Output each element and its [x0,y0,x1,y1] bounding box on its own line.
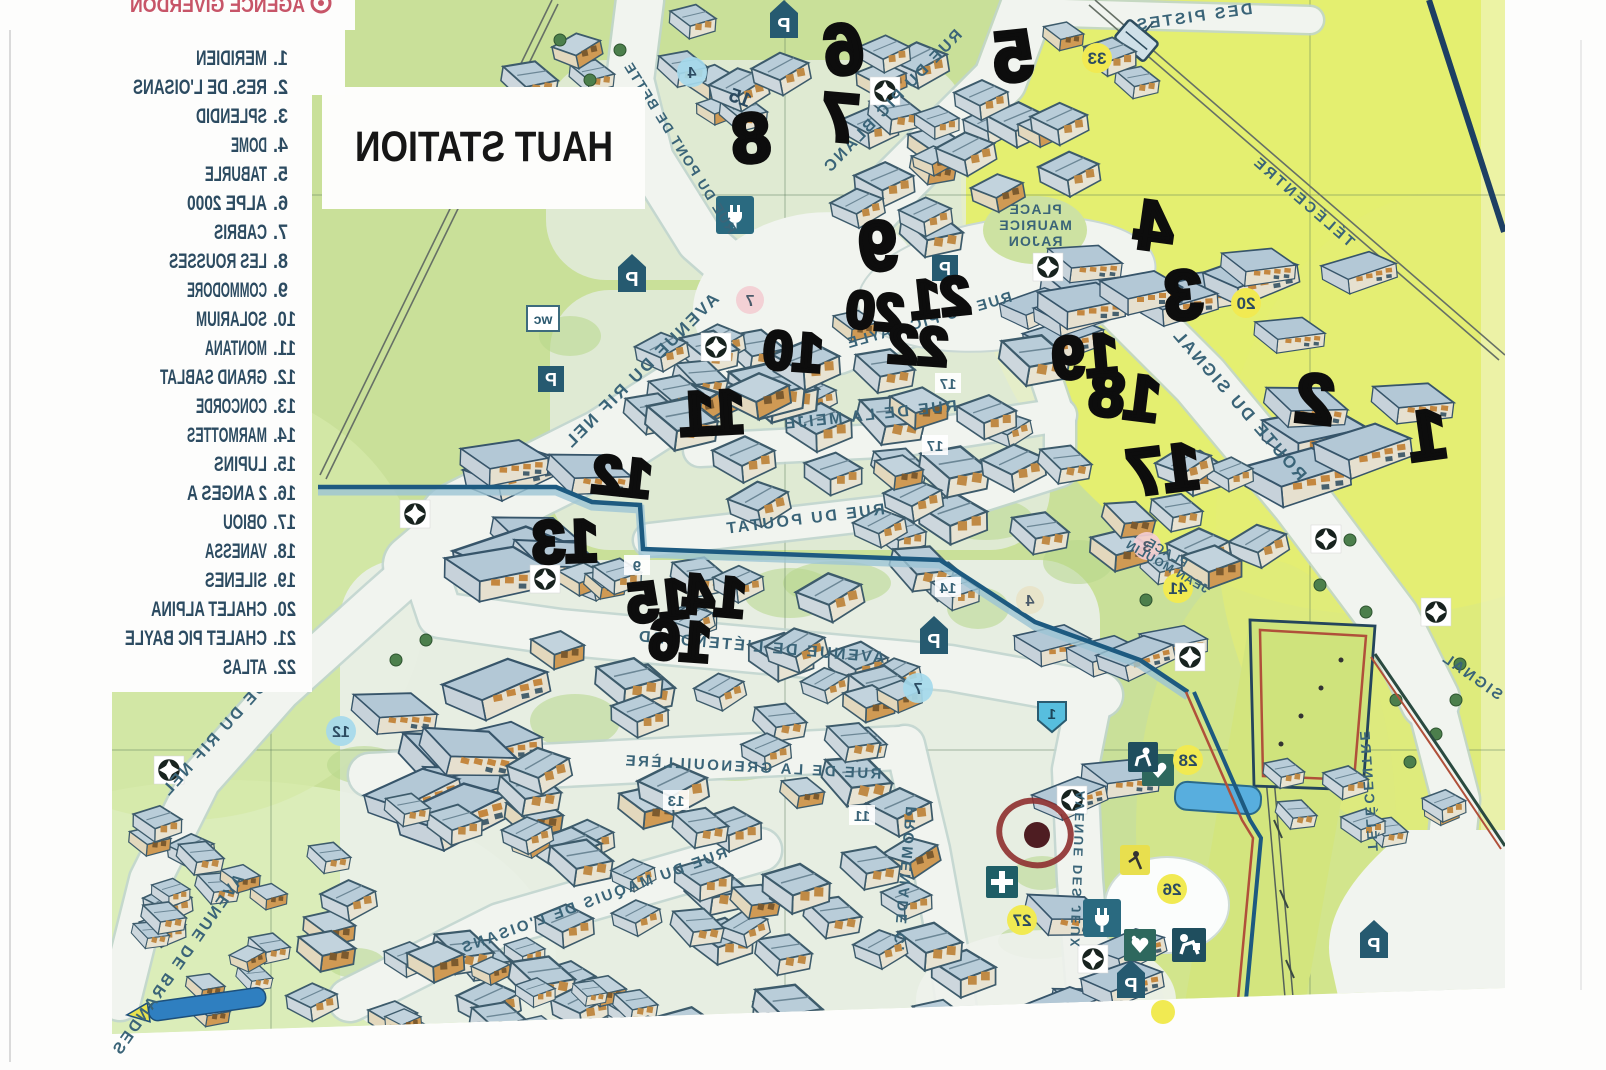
svg-text:RES. DE L'OISANS: RES. DE L'OISANS [133,76,267,99]
svg-text:LES ROUSSES: LES ROUSSES [169,250,267,273]
svg-text:HAUT STATION: HAUT STATION [355,123,613,171]
svg-text:CONCORDE: CONCORDE [196,395,267,418]
svg-text:5.: 5. [273,163,288,186]
svg-text:17: 17 [1122,428,1204,510]
svg-text:ALPE 2000: ALPE 2000 [187,192,267,215]
svg-text:14: 14 [939,580,956,597]
svg-text:12.: 12. [273,366,296,389]
svg-text:4: 4 [1025,593,1034,610]
svg-text:4: 4 [687,65,696,82]
svg-text:11: 11 [678,377,747,449]
svg-text:7: 7 [913,681,922,698]
svg-text:16: 16 [647,607,714,674]
svg-text:CHALET PIC BAYLE: CHALET PIC BAYLE [125,627,267,650]
svg-text:19.: 19. [273,569,296,592]
svg-text:1.: 1. [273,47,288,70]
svg-text:SILENES: SILENES [205,569,267,592]
svg-text:CHALET ALPINA: CHALET ALPINA [151,598,267,621]
svg-text:LUPINS: LUPINS [214,453,267,476]
svg-text:MARMOTTES: MARMOTTES [187,424,267,447]
svg-text:10.: 10. [273,308,296,331]
svg-text:8: 8 [729,98,773,179]
svg-text:6.: 6. [273,192,288,215]
svg-text:MAURICE: MAURICE [998,217,1072,233]
svg-text:11: 11 [854,808,870,825]
svg-text:28: 28 [1179,751,1198,770]
svg-text:SOLARIUM: SOLARIUM [196,308,267,331]
svg-text:33: 33 [1088,49,1107,68]
svg-text:8.: 8. [273,250,288,273]
svg-text:17: 17 [927,438,944,455]
svg-text:wc: wc [533,311,553,327]
svg-text:10: 10 [761,320,825,384]
svg-text:9.: 9. [273,279,288,302]
svg-text:20.: 20. [273,598,296,621]
svg-text:TABURLE: TABURLE [205,163,267,186]
svg-text:12: 12 [332,724,350,741]
svg-text:11.: 11. [273,337,296,360]
svg-text:GRAND SABLAT: GRAND SABLAT [160,366,267,389]
svg-text:2 ANGES A: 2 ANGES A [187,482,267,505]
svg-text:AGENCE GIVERDON: AGENCE GIVERDON [130,0,305,17]
svg-text:17: 17 [940,376,957,393]
svg-text:12: 12 [589,444,655,510]
svg-text:27: 27 [1013,911,1032,930]
svg-text:ATLAS: ATLAS [223,656,267,679]
svg-text:COMMODORE: COMMODORE [187,279,267,302]
svg-text:7: 7 [745,293,754,310]
svg-text:RAJON: RAJON [1007,233,1062,249]
svg-text:5: 5 [989,15,1037,99]
svg-text:22.: 22. [273,656,296,679]
svg-text:VANESSA: VANESSA [205,540,267,563]
svg-text:16.: 16. [273,482,296,505]
svg-text:2.: 2. [273,76,288,99]
svg-text:18.: 18. [273,540,296,563]
svg-text:7.: 7. [273,221,288,244]
svg-text:17.: 17. [273,511,296,534]
svg-text:26: 26 [1163,880,1182,899]
svg-text:4.: 4. [273,134,288,157]
svg-text:7: 7 [818,78,862,157]
svg-text:CABRIS: CABRIS [214,221,267,244]
svg-text:1: 1 [1048,706,1056,723]
svg-text:15.: 15. [273,453,296,476]
svg-text:19: 19 [1049,320,1121,393]
svg-text:PLACE: PLACE [1008,201,1061,217]
svg-text:2: 2 [1291,358,1338,440]
svg-text:13: 13 [531,507,600,576]
svg-text:3.: 3. [273,105,288,128]
svg-text:DOME: DOME [231,134,267,157]
svg-text:SPLENDID: SPLENDID [196,105,267,128]
svg-text:22: 22 [886,314,950,378]
svg-text:MONTANA: MONTANA [205,337,267,360]
svg-text:MERIDIEN: MERIDIEN [196,47,267,70]
svg-text:OBIOU: OBIOU [223,511,267,534]
svg-text:13.: 13. [273,395,296,418]
svg-text:20: 20 [1237,294,1256,313]
svg-text:21.: 21. [273,627,296,650]
svg-text:14.: 14. [273,424,296,447]
svg-text:13: 13 [668,793,685,810]
